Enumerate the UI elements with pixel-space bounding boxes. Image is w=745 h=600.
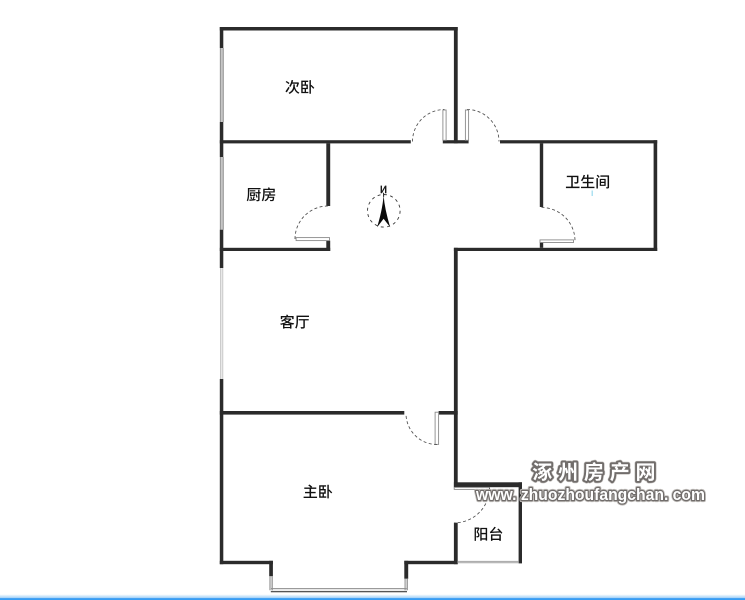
svg-text:www. zhuozhoufangchan. com: www. zhuozhoufangchan. com (475, 485, 705, 504)
